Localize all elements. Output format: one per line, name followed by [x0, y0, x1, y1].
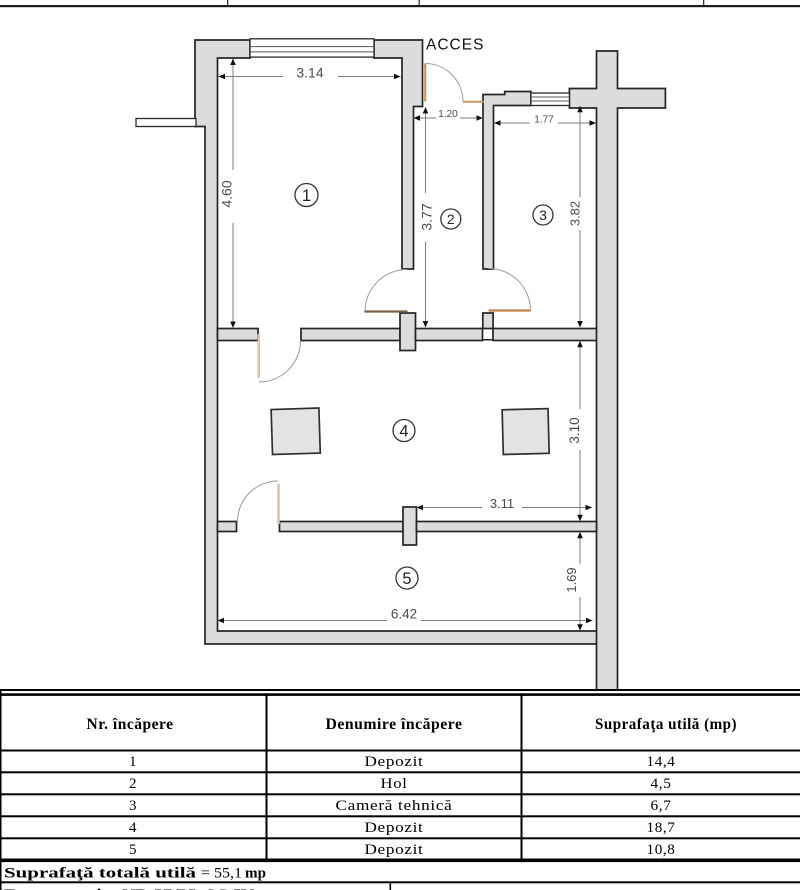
svg-text:3.77: 3.77	[418, 203, 434, 230]
svg-text:Suprafaţa utilă (mp): Suprafaţa utilă (mp)	[595, 716, 737, 733]
svg-text:1.20: 1.20	[438, 109, 458, 120]
svg-text:1.69: 1.69	[564, 567, 579, 592]
svg-text:Hol: Hol	[381, 776, 408, 792]
svg-text:2: 2	[129, 776, 137, 792]
svg-text:6,7: 6,7	[651, 798, 672, 814]
svg-text:5: 5	[402, 570, 411, 588]
svg-text:= 55,1: = 55,1	[201, 866, 242, 882]
svg-text:3: 3	[129, 798, 137, 814]
svg-text:Cameră tehnică: Cameră tehnică	[336, 798, 453, 814]
svg-text:1.77: 1.77	[534, 115, 554, 126]
svg-text:Depozit: Depozit	[365, 842, 424, 858]
svg-text:4,5: 4,5	[651, 776, 672, 792]
svg-text:4: 4	[399, 422, 408, 440]
svg-text:3.82: 3.82	[568, 201, 583, 226]
svg-text:18,7: 18,7	[647, 820, 676, 836]
svg-text:2: 2	[447, 211, 455, 227]
svg-text:Denumire încăpere: Denumire încăpere	[326, 716, 463, 733]
svg-text:4.60: 4.60	[218, 180, 234, 207]
svg-text:3: 3	[539, 207, 547, 223]
svg-text:Nr. încăpere: Nr. încăpere	[87, 716, 174, 733]
svg-text:1: 1	[129, 754, 137, 770]
svg-text:Depozit: Depozit	[365, 820, 424, 836]
svg-text:1: 1	[302, 187, 311, 205]
svg-text:4: 4	[129, 820, 137, 836]
svg-text:5: 5	[129, 842, 137, 858]
svg-text:10,8: 10,8	[647, 842, 676, 858]
svg-text:Depozit: Depozit	[365, 754, 424, 770]
svg-text:14,4: 14,4	[647, 754, 676, 770]
svg-text:3.14: 3.14	[296, 64, 323, 80]
svg-text:mp: mp	[245, 866, 266, 882]
svg-text:6.42: 6.42	[391, 607, 417, 622]
svg-text:3.10: 3.10	[567, 417, 582, 443]
svg-text:3.11: 3.11	[490, 496, 514, 511]
svg-text:Suprafaţă totală utilă: Suprafaţă totală utilă	[4, 866, 197, 882]
svg-text:ACCES: ACCES	[426, 37, 484, 54]
